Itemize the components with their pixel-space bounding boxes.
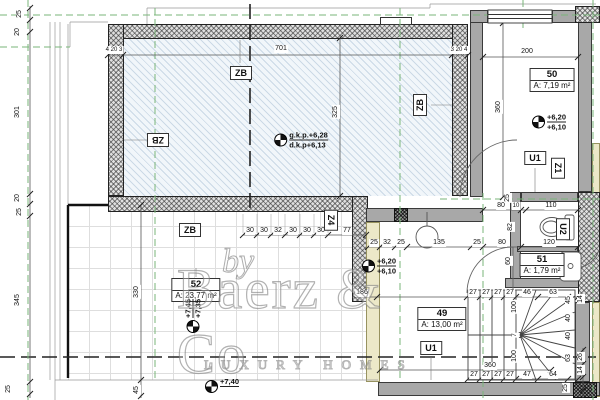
elevation-symbol-icon: [187, 320, 200, 333]
dimension-label: 301: [14, 105, 22, 119]
zone-label: ZB: [147, 133, 169, 147]
elevation-text: +6,20 +6,10: [377, 257, 396, 276]
room-area: A: 1,79 m²: [521, 266, 564, 276]
dimension-label: 80: [497, 239, 507, 247]
elevation-mark: +7,40: [205, 377, 239, 395]
elevation-mark: +6,20 +6,10: [532, 113, 566, 132]
room-area: A: 7,19 m²: [531, 81, 574, 91]
zone-label: ZB: [179, 223, 201, 237]
dimension-label: 63: [548, 289, 558, 297]
room-area: A: 13,00 m²: [418, 320, 465, 330]
dimension-label: 25: [16, 207, 24, 217]
room-number: 51: [521, 254, 564, 266]
dimension-label: 30: [302, 227, 312, 235]
room-number: 49: [418, 308, 465, 320]
dimension-label: 32: [273, 227, 283, 235]
dimension-label: 82: [507, 222, 515, 232]
dimension-label: 186: [355, 289, 369, 297]
zone-label: U1: [524, 151, 546, 165]
elevation-symbol-icon: [205, 380, 218, 393]
dimension-label: 26: [577, 352, 585, 362]
elevation-text: +6,20 +6,10: [547, 113, 566, 132]
dimension-label: 30: [288, 227, 298, 235]
dimension-label: 27: [468, 289, 478, 297]
dimension-label: 40: [565, 313, 573, 323]
dimension-label: 47: [522, 371, 532, 379]
dimension-label: 330: [133, 285, 141, 299]
dimension-label: 30: [259, 227, 269, 235]
elevation-symbol-icon: [362, 260, 375, 273]
elevation-mark: +6,20 +6,10: [362, 257, 396, 276]
zone-label: U2: [556, 218, 570, 240]
elevation-text: +7,40: [220, 377, 239, 395]
dimension-label: 27: [469, 371, 479, 379]
dimension-label: 120: [542, 239, 556, 247]
dimension-label: 45: [565, 295, 573, 305]
dimension-label: 25: [562, 383, 570, 393]
dimension-label: 80: [496, 202, 506, 210]
dimension-label: 27: [481, 289, 491, 297]
elevation-symbol-icon: [532, 116, 545, 129]
elevation-mark: +7,45 +7,35: [184, 299, 203, 333]
floor-plan: 7014 20 33 20 42003030323030307780101102…: [0, 0, 600, 400]
dimension-label: 20: [14, 193, 22, 203]
dimension-label: 200: [520, 48, 534, 56]
zone-label: U1: [420, 341, 442, 355]
dimension-label: 27: [493, 289, 503, 297]
dimension-label: 25: [369, 239, 379, 247]
elevation-mark: g.k.p.+6,28 d.k.p+6,13: [274, 131, 328, 150]
dimension-label: 325: [332, 105, 340, 119]
zone-label: Z4: [324, 210, 338, 231]
dimension-label: 7: [511, 332, 519, 337]
zone-label: Z1: [551, 158, 565, 179]
dimension-label: 27: [493, 371, 503, 379]
window: [488, 10, 552, 23]
dimension-label: 40: [565, 331, 573, 341]
room-label: 51 A: 1,79 m²: [520, 253, 565, 277]
dimension-label: 27: [505, 289, 515, 297]
dimension-label: 32: [382, 239, 392, 247]
dimension-label: 3 20 4: [450, 46, 469, 54]
zone-label: ZB: [413, 94, 427, 116]
dimension-label: 25: [396, 239, 406, 247]
dimension-label: 701: [274, 45, 288, 53]
dimension-label: 64: [548, 371, 558, 379]
dimension-label: 30: [245, 227, 255, 235]
elevation-symbol-icon: [274, 134, 287, 147]
dimension-label: 360: [483, 362, 497, 370]
dimension-label: 25: [472, 239, 482, 247]
room-label: 49 A: 13,00 m²: [417, 307, 466, 331]
dimension-label: 100: [511, 300, 519, 314]
dimension-label: 14: [577, 365, 585, 375]
dimension-label: 345: [14, 293, 22, 307]
dimension-label: 10: [512, 202, 521, 210]
terrace-boundary: [68, 205, 108, 378]
zone-label: ZB: [230, 66, 252, 80]
room-label: 50 A: 7,19 m²: [530, 68, 575, 92]
dimension-label: 46: [522, 289, 532, 297]
dimension-label: 27: [481, 371, 491, 379]
dimension-label: 45: [133, 385, 141, 395]
room-number: 50: [531, 69, 574, 81]
dimension-label: 25: [16, 9, 24, 19]
dimension-label: 25: [5, 384, 13, 394]
dimension-label: 27: [505, 371, 515, 379]
dimension-label: 135: [432, 239, 446, 247]
dimension-label: 60: [505, 256, 513, 266]
dimension-label: 14: [577, 294, 585, 304]
dimension-label: 4 20 3: [105, 46, 124, 54]
dimension-label: 100: [511, 349, 519, 363]
dimension-label: 77: [342, 227, 352, 235]
dimension-label: 20: [14, 27, 22, 37]
room-number: 52: [172, 279, 219, 291]
dimension-label: 63: [565, 353, 573, 363]
dimension-label: 110: [544, 202, 557, 210]
dimension-label: 360: [495, 100, 503, 114]
elevation-text: g.k.p.+6,28 d.k.p+6,13: [289, 131, 328, 150]
dimension-label: 25: [504, 193, 512, 203]
elevation-text: +7,45 +7,35: [184, 299, 203, 318]
